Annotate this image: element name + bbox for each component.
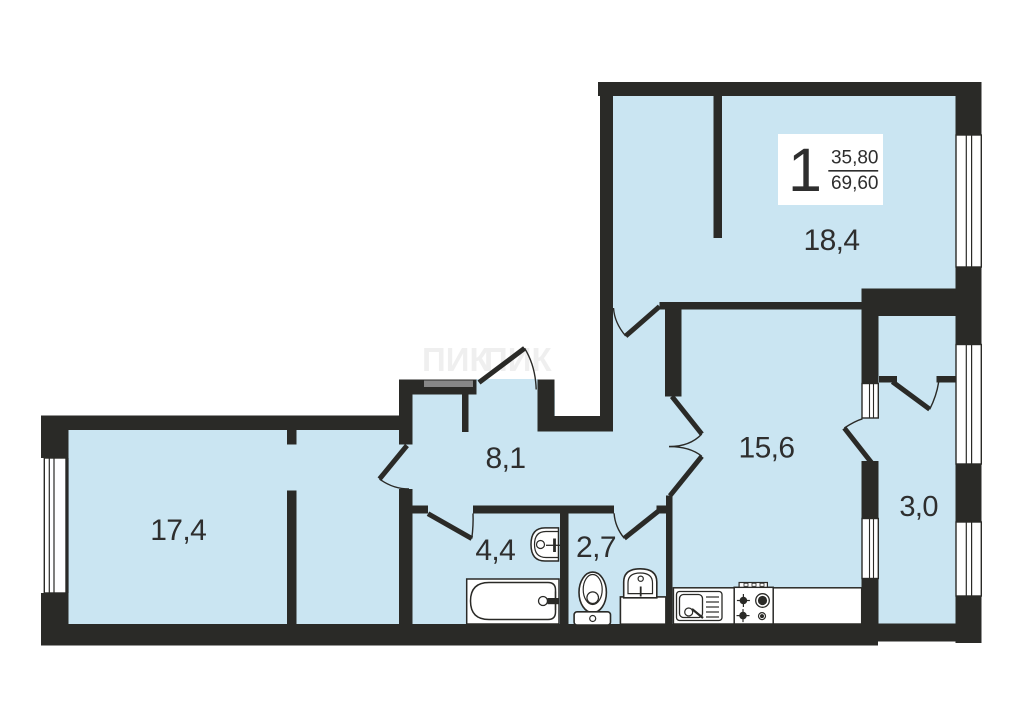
svg-text:18,4: 18,4: [804, 224, 860, 257]
svg-text:8,1: 8,1: [486, 442, 526, 475]
svg-text:1: 1: [788, 136, 822, 204]
svg-text:2,7: 2,7: [576, 531, 616, 564]
svg-text:35,80: 35,80: [831, 148, 879, 169]
svg-text:ПИК: ПИК: [422, 341, 490, 378]
svg-text:17,4: 17,4: [150, 514, 206, 547]
svg-text:15,6: 15,6: [739, 432, 795, 465]
svg-text:69,60: 69,60: [831, 173, 879, 194]
svg-text:4,4: 4,4: [475, 534, 515, 567]
svg-text:3,0: 3,0: [899, 491, 938, 523]
